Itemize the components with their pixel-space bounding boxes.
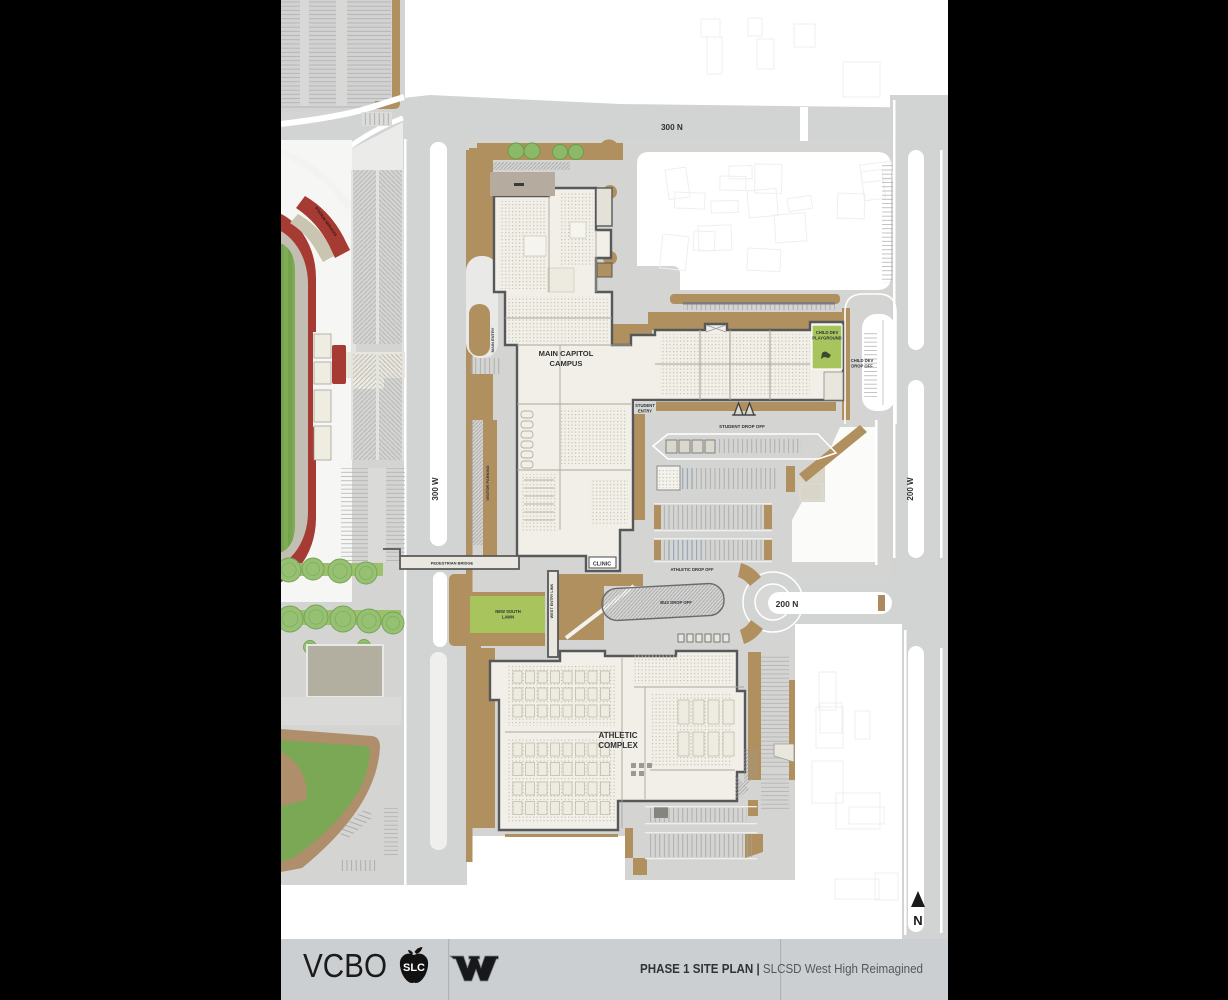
svg-text:ATHLETIC: ATHLETIC: [599, 731, 638, 740]
svg-text:WEST ENTRY LINK: WEST ENTRY LINK: [550, 583, 554, 618]
svg-text:VISITOR PARKING: VISITOR PARKING: [485, 465, 490, 500]
svg-text:VCBO: VCBO: [303, 947, 387, 984]
svg-text:ATHLETIC DROP OFF: ATHLETIC DROP OFF: [670, 567, 714, 572]
svg-text:200 N: 200 N: [776, 599, 799, 609]
svg-text:SLC: SLC: [403, 962, 425, 974]
svg-text:BUS DROP OFF: BUS DROP OFF: [660, 600, 692, 605]
svg-text:N: N: [913, 913, 922, 928]
svg-text:STUDENT DROP OFF: STUDENT DROP OFF: [719, 424, 765, 429]
svg-text:PHASE 1 SITE PLAN | SLCSD West: PHASE 1 SITE PLAN | SLCSD West High Reim…: [640, 962, 923, 976]
svg-text:300 W: 300 W: [431, 477, 440, 501]
svg-text:CHILD DEV: CHILD DEV: [816, 330, 839, 335]
svg-text:LAWN: LAWN: [502, 615, 514, 620]
svg-text:DROP OFF: DROP OFF: [851, 364, 873, 369]
svg-text:MAIN CAPITOL: MAIN CAPITOL: [539, 349, 594, 358]
svg-text:200 W: 200 W: [906, 477, 915, 501]
svg-text:300 N: 300 N: [661, 123, 683, 132]
svg-text:NEW SOUTH: NEW SOUTH: [495, 609, 521, 614]
svg-text:ENTRY: ENTRY: [638, 409, 652, 414]
svg-text:CAMPUS: CAMPUS: [550, 359, 583, 368]
svg-text:PEDESTRIAN BRIDGE: PEDESTRIAN BRIDGE: [431, 561, 474, 566]
svg-text:CLINIC: CLINIC: [593, 562, 611, 568]
svg-text:PLAYGROUND: PLAYGROUND: [812, 336, 841, 341]
svg-text:MAIN ENTRY: MAIN ENTRY: [490, 327, 495, 352]
svg-text:STUDENT: STUDENT: [635, 403, 655, 408]
svg-text:CHILD DEV: CHILD DEV: [851, 358, 874, 363]
svg-text:COMPLEX: COMPLEX: [598, 741, 638, 750]
